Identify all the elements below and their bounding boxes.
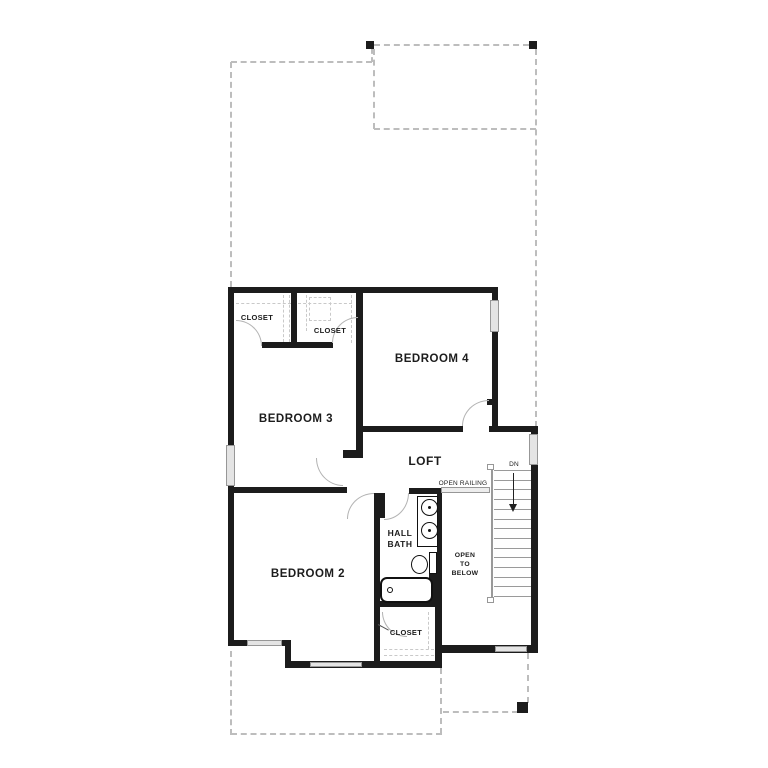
dashed-outline-segment <box>440 668 442 734</box>
wall-closet-right <box>435 600 442 668</box>
open-to-below-line1: OPEN <box>440 551 490 560</box>
stairs-dn-label: DN <box>504 461 524 468</box>
bedroom2-label: BEDROOM 2 <box>233 568 383 580</box>
door-arc-closet-bedroom3 <box>236 320 262 346</box>
wall-bottom-center <box>285 661 442 668</box>
closet-bedroom4-label: CLOSET <box>300 326 360 335</box>
dashed-outline-segment <box>231 733 442 735</box>
bedroom4-label: BEDROOM 4 <box>357 353 507 365</box>
hall-bath-label-line2: BATH <box>375 539 425 550</box>
dashed-outline-segment <box>527 653 529 703</box>
post-marker <box>366 41 374 49</box>
wall-top <box>228 287 498 293</box>
window <box>529 434 538 465</box>
post-marker <box>517 702 528 713</box>
window <box>490 300 499 332</box>
window <box>247 640 282 646</box>
wall-closets-bottom <box>262 342 297 348</box>
stair-arrow-head <box>509 504 517 512</box>
wall-bedroom3-jog <box>343 450 363 458</box>
toilet-bowl-icon <box>411 555 428 574</box>
closet-shelf-line <box>384 649 434 650</box>
wall-closet-divider <box>291 290 297 348</box>
stair-rail-cap <box>487 464 494 470</box>
door-arc-bedroom4 <box>462 400 489 426</box>
wall-bedroom3-bottom <box>228 487 347 493</box>
dashed-outline-segment <box>374 128 536 130</box>
dashed-outline-segment <box>230 62 232 287</box>
stair-tread <box>494 548 531 549</box>
door-arc-bedroom2 <box>347 493 374 519</box>
toilet-tank-icon <box>429 552 437 574</box>
stair-rail-cap <box>487 597 494 603</box>
open-to-below-line2: TO <box>440 560 490 569</box>
stair-tread <box>494 577 531 578</box>
dashed-outline-segment <box>374 44 529 46</box>
window <box>226 445 235 486</box>
wall-bedroom4-bottom <box>358 426 463 432</box>
wall-closets-bottom <box>297 342 333 348</box>
sink-drain-icon <box>428 529 431 532</box>
dashed-outline-segment <box>230 651 232 735</box>
stair-tread <box>494 596 531 597</box>
window <box>310 662 362 667</box>
dashed-outline-segment <box>443 711 518 713</box>
closet-shelf-box <box>309 297 331 321</box>
open-to-below-line3: BELOW <box>440 569 490 578</box>
open-railing-bar <box>441 487 490 493</box>
window <box>495 646 527 652</box>
loft-label: LOFT <box>375 454 475 468</box>
closet-shelf-line <box>384 655 434 656</box>
closet-bedroom2-label: CLOSET <box>376 628 436 637</box>
hall-bath-label-line1: HALL <box>375 528 425 539</box>
stair-arrow-shaft <box>513 473 514 505</box>
stair-tread <box>494 528 531 529</box>
wall-bedroom3-right <box>356 290 363 452</box>
open-railing-label: OPEN RAILING <box>433 480 493 487</box>
stair-tread <box>494 519 531 520</box>
floor-plan: BEDROOM 2 BEDROOM 3 BEDROOM 4 LOFT HALL … <box>0 0 768 768</box>
closet-shelf-line <box>289 295 290 342</box>
stair-tread <box>494 586 531 587</box>
sink-drain-icon <box>428 506 431 509</box>
stair-tread <box>494 567 531 568</box>
door-arc-bedroom3 <box>316 458 343 486</box>
hall-bath-label: HALL BATH <box>375 528 425 550</box>
bedroom3-label: BEDROOM 3 <box>221 413 371 425</box>
closet-bedroom3-label: CLOSET <box>227 313 287 322</box>
post-marker <box>529 41 537 49</box>
staircase <box>490 462 538 602</box>
stair-tread <box>494 557 531 558</box>
dashed-outline-segment <box>535 49 537 427</box>
stair-tread <box>494 538 531 539</box>
dashed-outline-segment <box>373 49 375 129</box>
open-to-below-label: OPEN TO BELOW <box>440 551 490 578</box>
dashed-outline-segment <box>231 61 372 63</box>
door-arc-hall-bath <box>384 493 409 520</box>
stair-tread <box>494 470 531 471</box>
bathtub-drain-icon <box>387 587 393 593</box>
